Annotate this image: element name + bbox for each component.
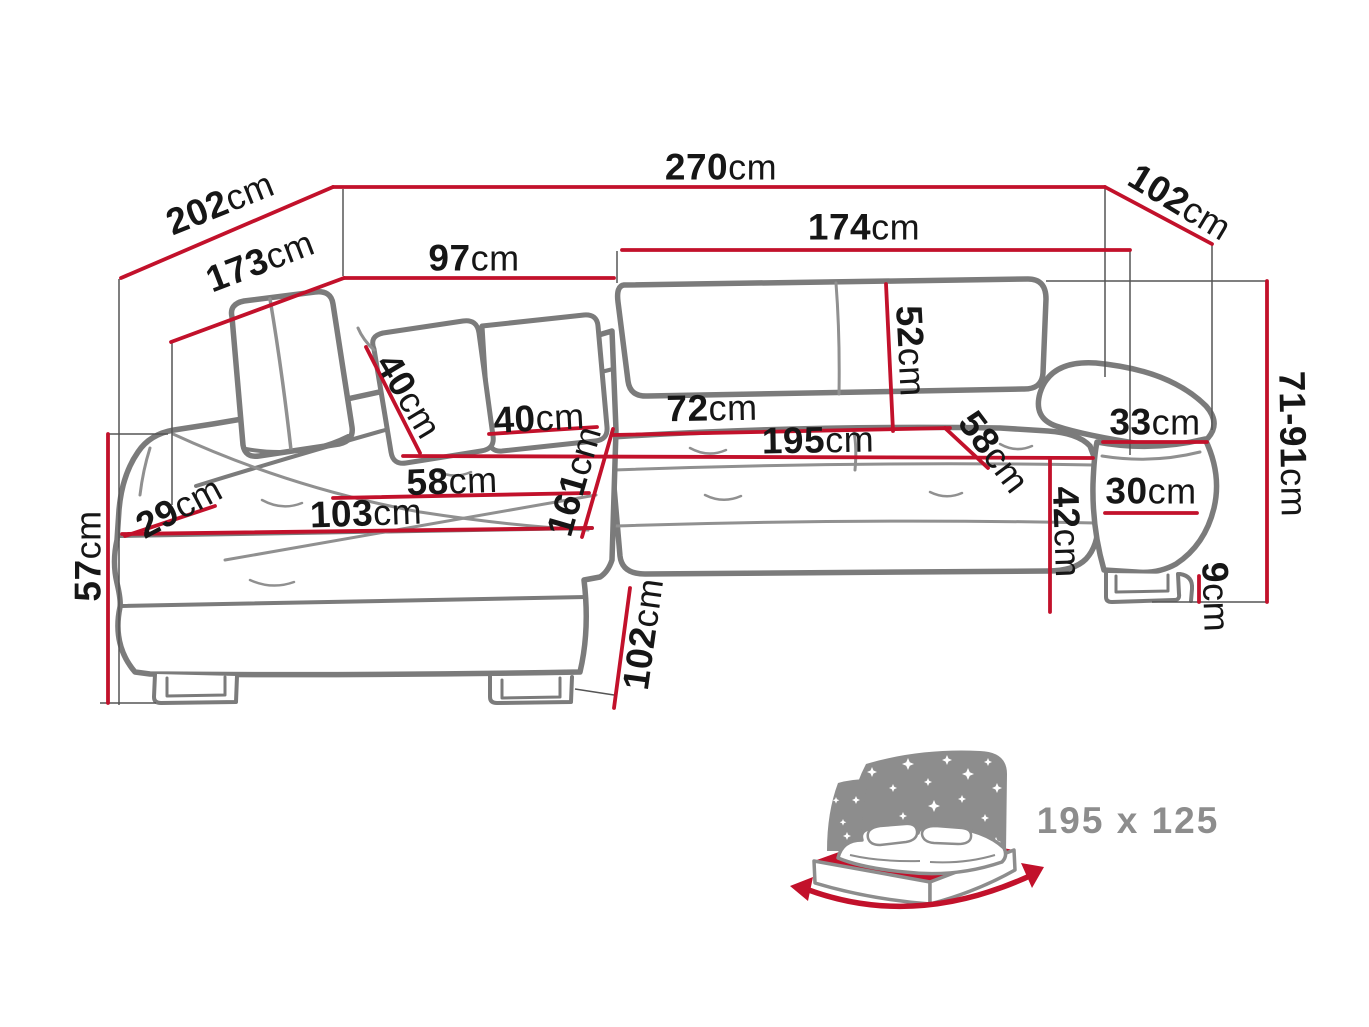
dim-label-sleeping-length: 195cm	[762, 421, 875, 460]
dim-label-backrest-height: 52cm	[890, 305, 932, 398]
dim-label-chaise-back-width: 97cm	[428, 240, 519, 277]
dim-label-seat-height: 42cm	[1047, 486, 1087, 578]
dim-label-width-overall: 270cm	[665, 149, 777, 186]
bed-pillow-right	[922, 826, 971, 844]
dim-label-chaise-front-length: 103cm	[309, 493, 422, 534]
dim-label-seat-width: 174cm	[808, 209, 920, 246]
dim-label-armrest-side-width: 30cm	[1105, 473, 1196, 510]
dim-label-seat-front-height: 57cm	[70, 510, 107, 601]
dim-label-seat-depth: 72cm	[666, 389, 758, 428]
sleeping-area-size-label: 195 x 125	[1037, 800, 1220, 842]
sofa-bed-icon	[790, 751, 1044, 907]
bed-pillow-left	[868, 824, 917, 845]
right-backrest	[618, 279, 1046, 396]
sofa-dimensions-diagram: 202cm 270cm 102cm 173cm 97cm 174cm 40cm …	[0, 0, 1369, 1027]
dim-label-leg-height: 9cm	[1196, 561, 1235, 632]
headrest-cushion	[232, 292, 353, 457]
dim-label-armrest-top-width: 33cm	[1109, 404, 1200, 441]
dim-label-backrest-height-range: 71-91cm	[1273, 371, 1313, 518]
right-base-corner	[1180, 574, 1192, 601]
